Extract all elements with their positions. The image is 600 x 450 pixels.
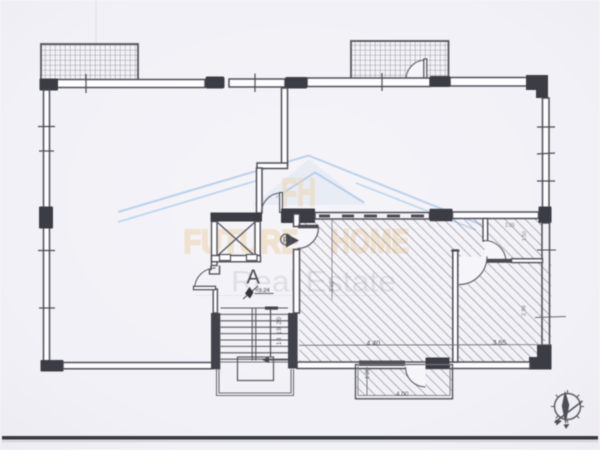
svg-text:FH: FH [281, 171, 316, 215]
svg-text:R: R [283, 236, 289, 245]
svg-text:4.00: 4.00 [396, 391, 409, 398]
svg-text:1.50: 1.50 [522, 231, 528, 241]
svg-text:2.96: 2.96 [522, 305, 528, 316]
svg-text:2.05: 2.05 [505, 223, 515, 229]
svg-text:A: A [247, 267, 261, 289]
svg-text:18 19 20: 18 19 20 [277, 316, 283, 345]
svg-text:1.20: 1.20 [365, 368, 371, 379]
svg-text:4.40: 4.40 [367, 341, 381, 348]
svg-text:3.60: 3.60 [330, 281, 336, 292]
svg-text:3.65: 3.65 [493, 340, 507, 347]
